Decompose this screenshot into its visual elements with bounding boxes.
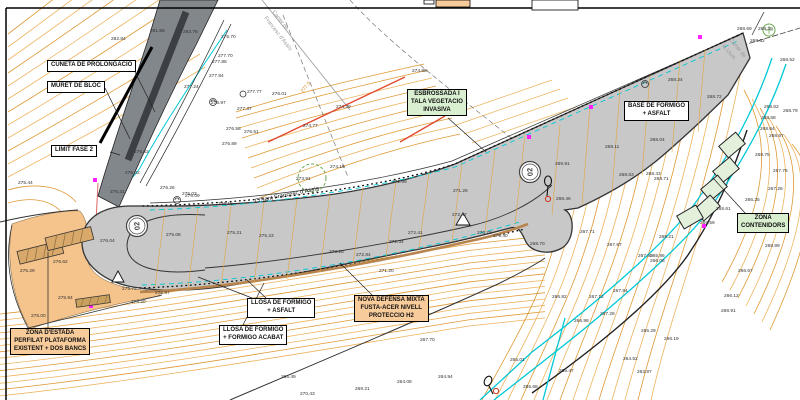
elevation-label: 274.39	[336, 104, 351, 110]
elevation-label: 265.01	[510, 357, 525, 363]
elevation-label: 267.76	[773, 168, 788, 174]
elevation-label: 270.43	[300, 391, 315, 397]
elevation-label: 268.72	[707, 94, 722, 100]
label-limit-text: LIMIT FASE 2	[55, 147, 93, 155]
elevation-label: 267.71	[580, 229, 595, 235]
elevation-label: 276.32	[125, 170, 140, 176]
label-base-formigo: BASE DE FORMIGO + ASFALT	[624, 101, 689, 121]
elevation-label: 268.46	[556, 196, 571, 202]
label-limit-fase: LIMIT FASE 2	[51, 145, 97, 157]
elevation-label: 269.21	[355, 386, 370, 392]
elevation-label: 275.44	[18, 180, 33, 186]
elevation-label: 271.20	[379, 268, 394, 274]
label-llosa-acabat: LLOSA DE FORMIGO + FORMIGO ACABAT	[219, 325, 287, 345]
elevation-label: 268.61	[716, 206, 731, 212]
elevation-label: 268.68	[761, 115, 776, 121]
elevation-label: 276.31	[110, 189, 125, 195]
label-esbrossada: ESBROSSADA I TALA VEGETACIO INVASIVA	[407, 89, 467, 116]
elevation-label: 282.84	[111, 36, 126, 42]
elevation-label: 268.62	[764, 104, 779, 110]
label-cuneta: CUNETA DE PROLONGACIO	[47, 60, 136, 72]
label-muret-text: MURET DE BLOC	[51, 83, 101, 91]
elevation-label: 267.26	[768, 186, 783, 192]
elevation-label: 276.62	[53, 259, 68, 265]
label-zona-estada: ZONA D'ESTADA PERFILAT PLATAFORMA EXISTE…	[10, 328, 90, 355]
elevation-label: 276.51	[244, 129, 259, 135]
elevation-label: 268.99	[765, 243, 780, 249]
elevation-label: 269.11	[605, 144, 620, 150]
elevation-label: 272.47	[452, 212, 467, 218]
elevation-label: 267.84	[613, 288, 628, 294]
label-muret: MURET DE BLOC	[47, 81, 105, 93]
elevation-label: 265.47	[559, 368, 574, 374]
elevation-label: 274.88	[412, 68, 427, 74]
elevation-label: 267.28	[600, 311, 615, 317]
elevation-label: 268.52	[780, 57, 795, 63]
elevation-label: 270.73	[477, 230, 492, 236]
elevation-label: 268.62	[750, 38, 765, 44]
elevation-label: 277.84	[209, 73, 224, 79]
section-marker-2: 02	[520, 162, 541, 183]
elevation-label: 268.04	[650, 137, 665, 143]
elevation-label: 272.84	[356, 252, 371, 258]
elevation-label: 267.87	[607, 242, 622, 248]
elevation-label: 266.19	[664, 336, 679, 342]
label-llosa-asfalt: LLOSA DE FORMIGO + ASFALT	[247, 298, 315, 318]
elevation-label: 266.67	[738, 268, 753, 274]
elevation-label: 275.00	[31, 313, 46, 319]
elevation-label: 276.58	[226, 126, 241, 132]
label-nova-defensa: NOVA DEFENSA MIXTA FUSTA-ACER NIVELL PRO…	[354, 295, 429, 322]
elevation-label: 268.70	[530, 241, 545, 247]
elevation-label: 265.68	[523, 384, 538, 390]
elevation-label: 272.99	[392, 179, 407, 185]
elevation-label: 274.19	[330, 164, 345, 170]
label-cuneta-text: CUNETA DE PROLONGACIO	[51, 62, 132, 70]
elevation-label: 266.82	[552, 294, 567, 300]
elevation-label: 275.08	[166, 232, 181, 238]
elevation-label: 272.34	[389, 239, 404, 245]
elevation-label: 263.97	[637, 369, 652, 375]
elevation-label: 275.29	[20, 268, 35, 274]
elevation-label: 277.70	[218, 53, 233, 59]
elevation-label: 267.70	[420, 337, 435, 343]
elevation-label: 264.94	[438, 374, 453, 380]
label-zona-contenidors: ZONA CONTENIDORS	[737, 213, 789, 233]
elevation-label: 276.26	[160, 185, 175, 191]
elevation-label: 275.23	[259, 233, 274, 239]
elevation-label: 268.69	[737, 26, 752, 32]
elevation-label: 268.21	[659, 234, 674, 240]
elevation-label: 268.67	[769, 133, 784, 139]
elevation-label: 265.49	[281, 374, 296, 380]
elevation-label: 276.01	[272, 91, 287, 97]
elevation-label: 275.94	[58, 295, 73, 301]
elevation-label: 275.72	[122, 286, 137, 292]
elevation-label: 276.09	[185, 193, 200, 199]
elevation-label: 273.91	[296, 176, 311, 182]
elevation-label: 268.39	[758, 26, 773, 32]
svg-text:02: 02	[132, 221, 142, 230]
elevation-label: 268.71	[654, 176, 669, 182]
elevation-label: 268.63	[619, 172, 634, 178]
elevation-label: 268.79	[783, 108, 798, 114]
elevation-label: 266.12	[724, 293, 739, 299]
elevation-label: 277.37	[237, 106, 252, 112]
section-marker-1: 02	[127, 216, 148, 237]
plan-viewport: { "labels": { "cuneta": "CUNETA DE PROLO…	[0, 0, 800, 400]
elevation-label: 275.70	[221, 34, 236, 40]
elevation-label: 270.40	[493, 233, 508, 239]
elevation-label: 277.77	[247, 89, 262, 95]
elevation-label: 276.89	[222, 141, 237, 147]
elevation-label: 283.76	[183, 29, 198, 35]
elevation-label: 267.12	[589, 294, 604, 300]
elevation-label: 266.25	[745, 197, 760, 203]
elevation-label: 268.64	[760, 126, 775, 132]
elevation-label: 264.52	[623, 356, 638, 362]
svg-text:02: 02	[525, 167, 535, 176]
elevation-label: 266.98	[574, 318, 589, 324]
elevation-label: 268.75	[755, 152, 770, 158]
elevation-label: 272.41	[408, 230, 423, 236]
elevation-label: 275.20	[131, 299, 146, 305]
elevation-label: 276.97	[211, 100, 226, 106]
elevation-label: 277.88	[212, 59, 227, 65]
elevation-label: 273.26	[329, 249, 344, 255]
elevation-label: 281.66	[150, 28, 165, 34]
elevation-label: 268.59	[700, 220, 715, 226]
elevation-label: 271.26	[453, 188, 468, 194]
elevation-label: 268.91	[721, 308, 736, 314]
elevation-label: 269.91	[555, 161, 570, 167]
elevation-label: 276.63	[134, 149, 149, 155]
contour-elevation-label: 277.5	[300, 81, 313, 95]
elevation-label: 277.24	[184, 84, 199, 90]
elevation-label: 276.04	[100, 238, 115, 244]
elevation-label: 264.08	[397, 379, 412, 385]
elevation-label: 265.29	[641, 328, 656, 334]
elevation-label: 275.87	[155, 290, 170, 296]
elevation-label: 275.21	[227, 230, 242, 236]
container-symbols	[677, 132, 746, 229]
elevation-label: 266.06	[650, 258, 665, 264]
elevation-label: 276.18	[218, 201, 233, 207]
elevation-label: 268.24	[668, 77, 683, 83]
elevation-label: 274.77	[303, 123, 318, 129]
